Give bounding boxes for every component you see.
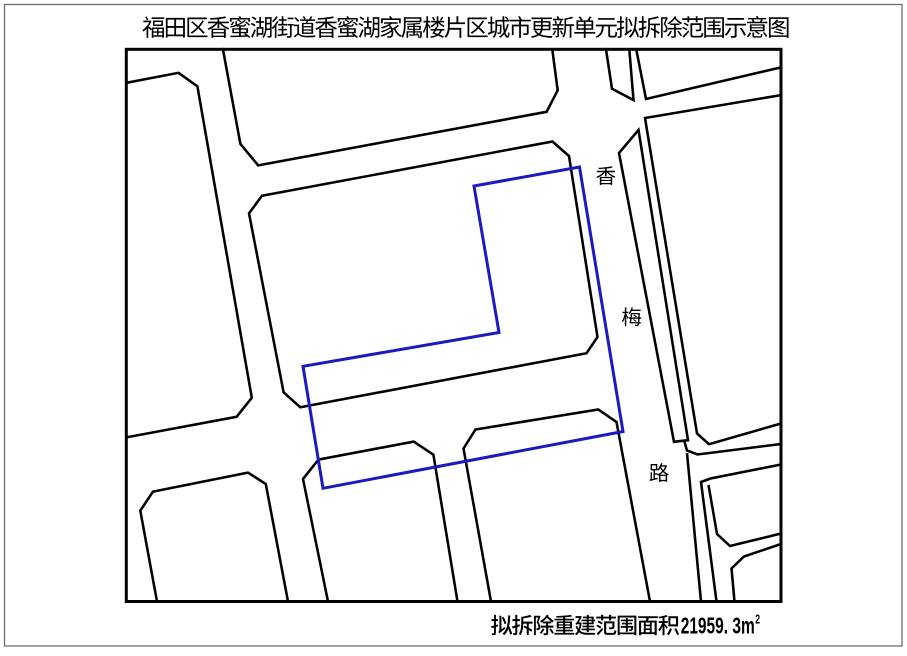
svg-text:2: 2 [755,613,760,627]
svg-text:21959. 3m: 21959. 3m [681,613,755,639]
